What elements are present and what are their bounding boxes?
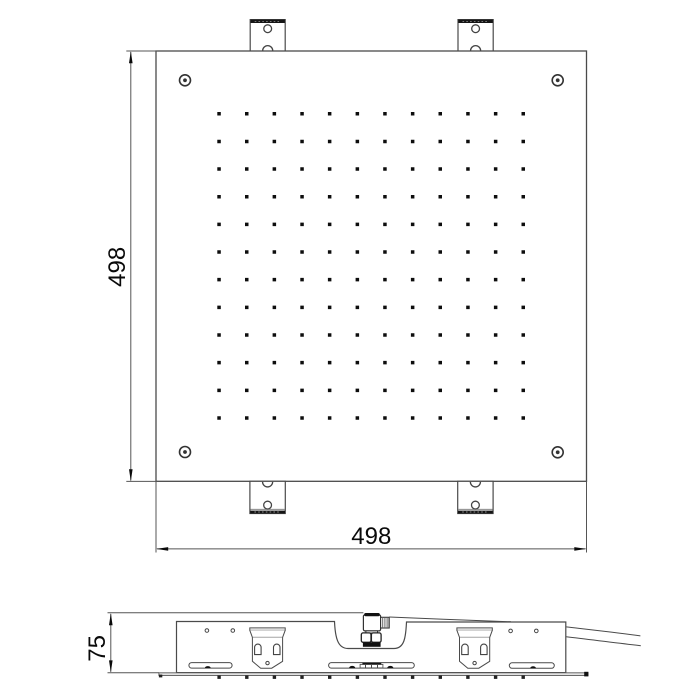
- svg-text:75: 75: [84, 635, 111, 662]
- svg-text:498: 498: [104, 247, 131, 287]
- svg-text:498: 498: [351, 523, 391, 550]
